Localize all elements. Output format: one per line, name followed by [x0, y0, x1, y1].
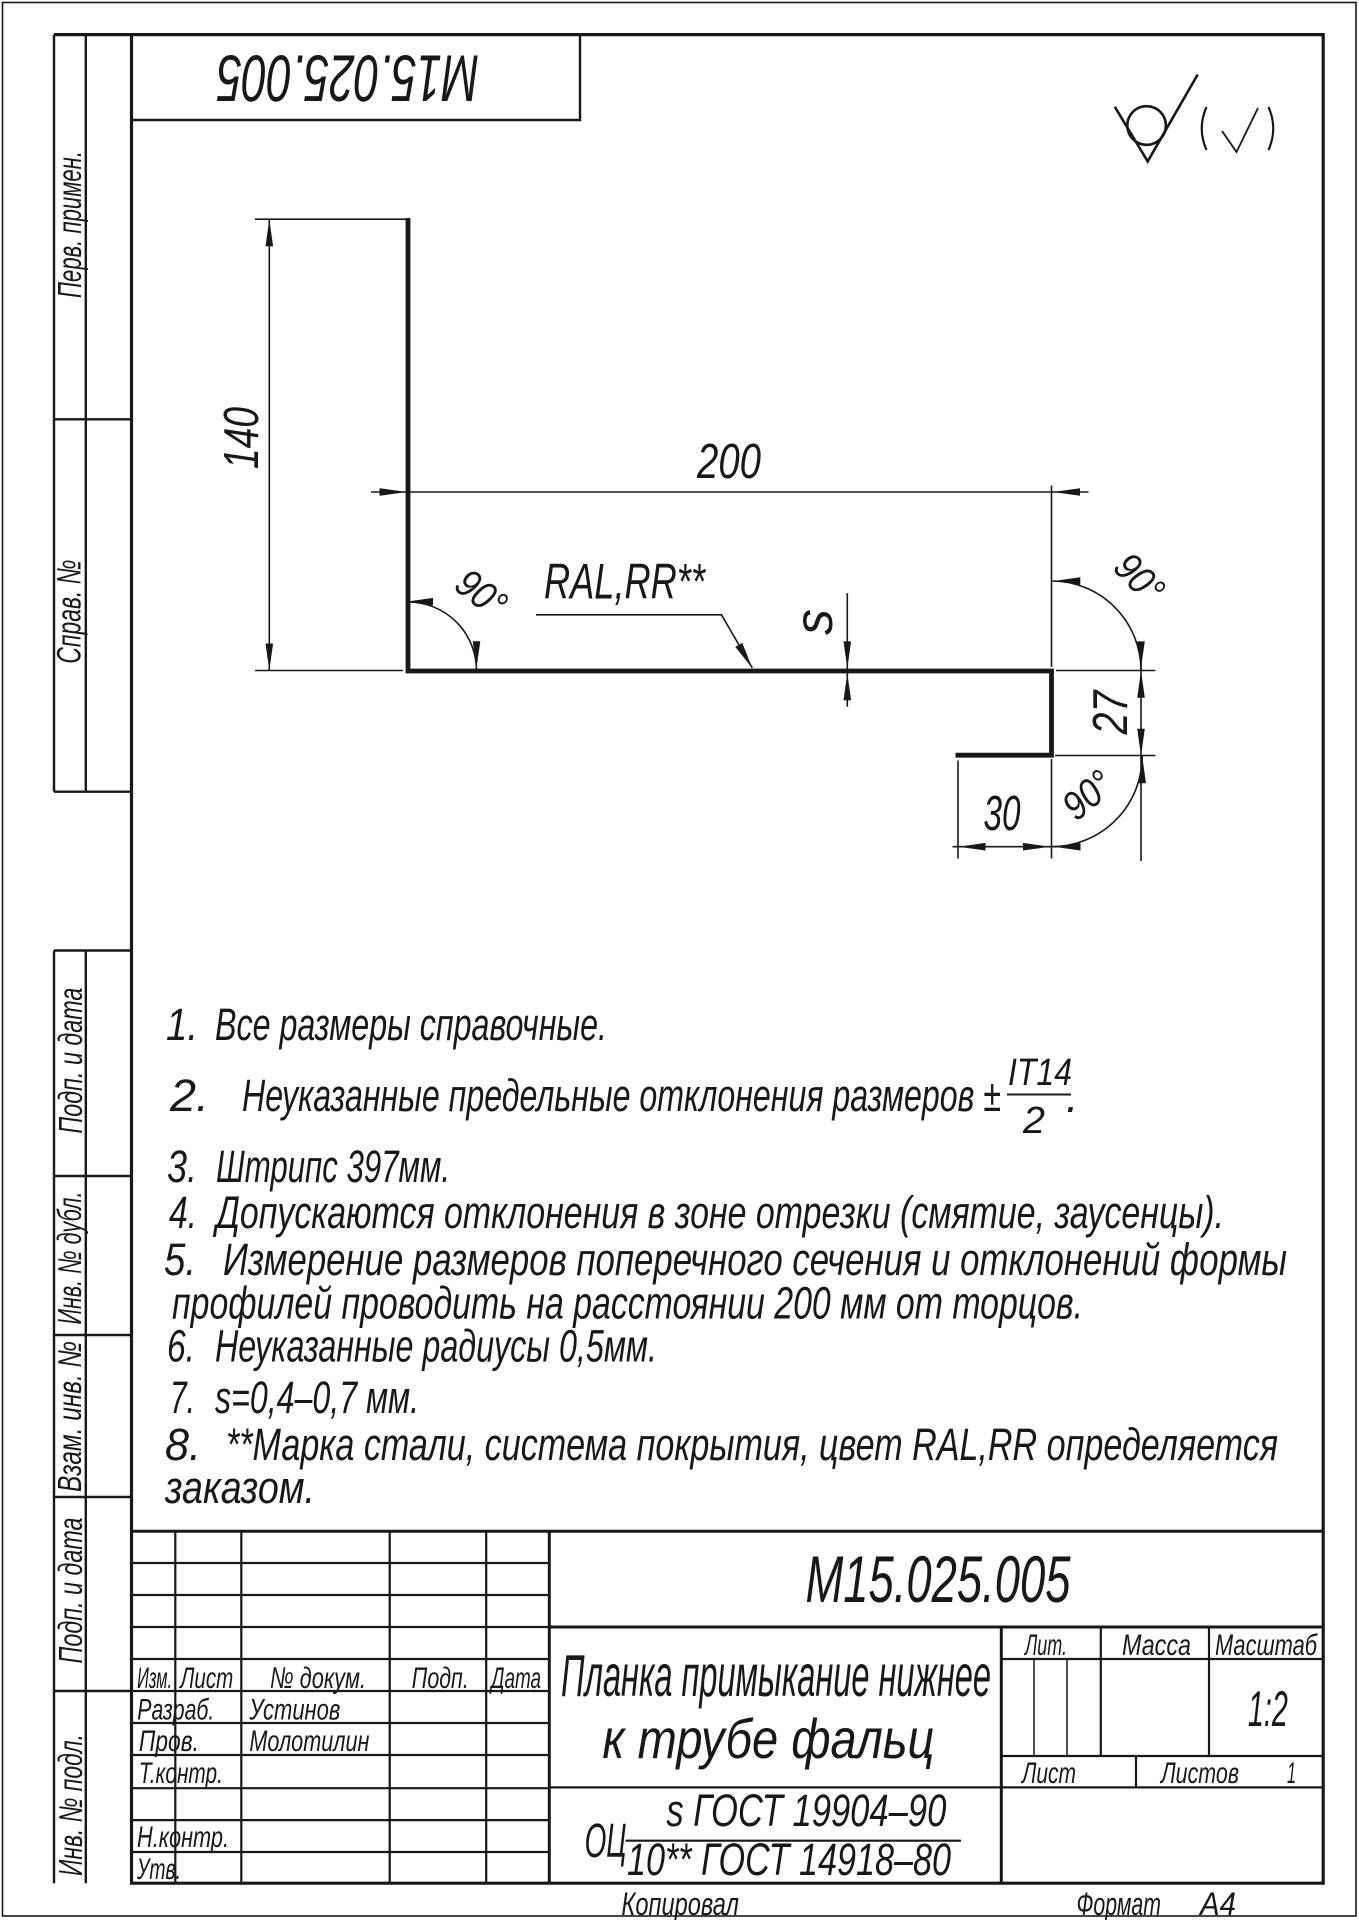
svg-text:Дата: Дата: [489, 1662, 541, 1695]
svg-text:Перв. примен.: Перв. примен.: [51, 151, 88, 298]
svg-text:А4: А4: [1198, 1886, 1236, 1920]
svg-text:Копировал: Копировал: [621, 1886, 739, 1920]
svg-text:М15.025.005: М15.025.005: [217, 41, 479, 115]
svg-text:Пров.: Пров.: [139, 1725, 199, 1758]
svg-text:1.: 1.: [166, 999, 198, 1050]
svg-text:Все размеры справочные.: Все размеры справочные.: [215, 999, 607, 1050]
svg-text:Молотилин: Молотилин: [249, 1725, 369, 1758]
svg-text:Штрипс 397мм.: Штрипс 397мм.: [216, 1141, 450, 1192]
svg-text:4.: 4.: [169, 1187, 197, 1238]
svg-text:Разраб.: Разраб.: [137, 1694, 214, 1727]
svg-text:Масса: Масса: [1122, 1629, 1191, 1662]
svg-text:Неуказанные радиусы 0,5мм.: Неуказанные радиусы 0,5мм.: [215, 1321, 657, 1372]
svg-text:Инв. № дубл.: Инв. № дубл.: [51, 1192, 88, 1325]
svg-text:Изм.: Изм.: [137, 1662, 172, 1695]
svg-text:27: 27: [1084, 689, 1138, 735]
svg-text:Лист: Лист: [179, 1662, 233, 1695]
svg-text:Подп. и дата: Подп. и дата: [52, 988, 89, 1134]
svg-text:IT14: IT14: [1008, 1052, 1072, 1094]
svg-text:6.: 6.: [167, 1321, 195, 1372]
svg-text:2.: 2.: [169, 1070, 209, 1121]
svg-text:М15.025.005: М15.025.005: [806, 1542, 1071, 1616]
svg-text:30: 30: [984, 787, 1021, 841]
svg-text:10** ГОСТ 14918–80: 10** ГОСТ 14918–80: [627, 1834, 951, 1885]
svg-text:заказом.: заказом.: [164, 1462, 315, 1513]
svg-text:Планка примыкание нижнее: Планка примыкание нижнее: [561, 1643, 991, 1709]
svg-text:Инв. № подл.: Инв. № подл.: [52, 1734, 89, 1876]
svg-text:2: 2: [1022, 1100, 1045, 1142]
svg-text:Подп.: Подп.: [412, 1662, 469, 1695]
svg-text:.: .: [1066, 1071, 1079, 1122]
svg-text:Устинов: Устинов: [249, 1694, 341, 1727]
svg-text:**Марка стали, система покрыт: **Марка стали, система покрытия, цвет RA…: [226, 1419, 1278, 1470]
svg-text:Подп. и дата: Подп. и дата: [52, 1518, 89, 1664]
svg-text:1:2: 1:2: [1248, 1681, 1288, 1737]
svg-text:Утв.: Утв.: [136, 1853, 181, 1886]
svg-text:RAL,RR**: RAL,RR**: [544, 554, 706, 610]
svg-text:№ докум.: № докум.: [270, 1662, 366, 1695]
svg-text:Лист: Лист: [1021, 1757, 1076, 1790]
svg-text:200: 200: [696, 435, 761, 489]
svg-text:s=0,4–0,7 мм.: s=0,4–0,7 мм.: [215, 1372, 419, 1423]
svg-text:Неуказанные предельные отклоне: Неуказанные предельные отклонения размер…: [242, 1070, 1001, 1121]
svg-text:Н.контр.: Н.контр.: [137, 1821, 229, 1854]
svg-text:Справ. №: Справ. №: [51, 560, 89, 664]
svg-text:Формат: Формат: [1077, 1886, 1162, 1920]
svg-text:Листов: Листов: [1160, 1757, 1239, 1790]
svg-text:Допускаются отклонения в зоне: Допускаются отклонения в зоне отрезки (с…: [212, 1187, 1224, 1238]
svg-text:3.: 3.: [167, 1141, 197, 1192]
svg-text:ОЦ: ОЦ: [585, 1815, 627, 1868]
svg-text:s: s: [784, 609, 844, 635]
svg-text:Лит.: Лит.: [1024, 1629, 1067, 1662]
svg-text:к трубе фальц: к трубе фальц: [602, 1707, 934, 1770]
svg-text:Масштаб: Масштаб: [1215, 1629, 1318, 1662]
svg-text:1: 1: [1287, 1757, 1296, 1790]
svg-text:Взам. инв. №: Взам. инв. №: [51, 1341, 88, 1492]
svg-text:Т.контр.: Т.контр.: [139, 1757, 223, 1790]
svg-text:s ГОСТ 19904–90: s ГОСТ 19904–90: [666, 1785, 946, 1836]
svg-text:7.: 7.: [170, 1372, 195, 1423]
svg-text:140: 140: [215, 407, 269, 469]
